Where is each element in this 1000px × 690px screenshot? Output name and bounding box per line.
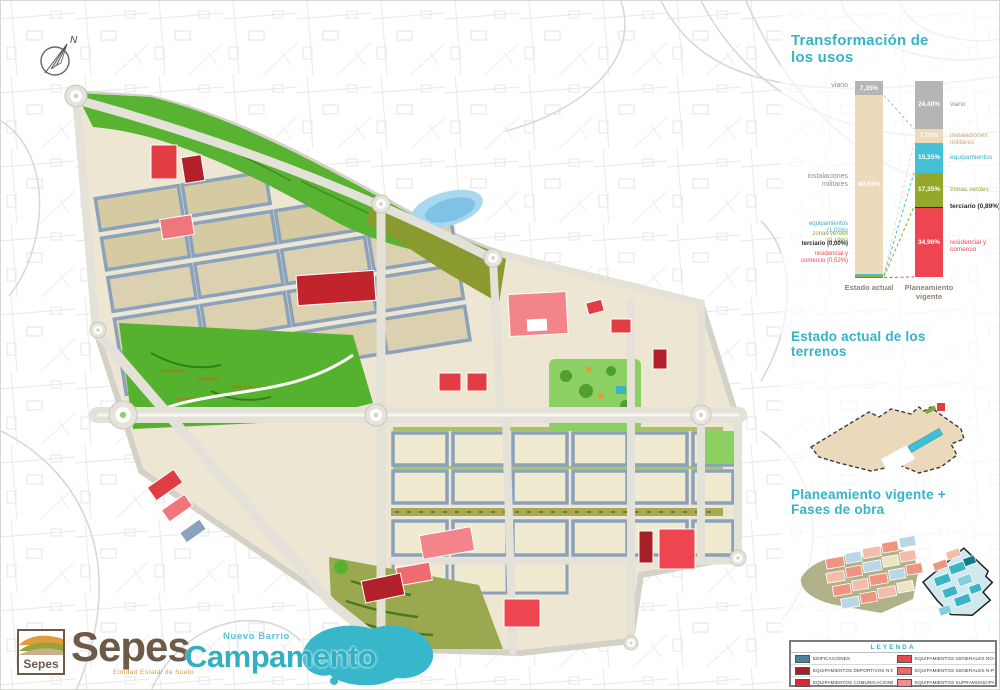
estado-title: Estado actual de los terrenos — [791, 329, 951, 359]
right-label-terciario: terciario (0,89%) — [950, 203, 1000, 210]
bar-segment-zonas-verdes: 17,35% — [915, 173, 943, 207]
bar-segment-instalaciones-militares: 7,01% — [915, 129, 943, 143]
left-label-terciario: terciario (0,00%) — [791, 241, 848, 248]
right-label-equipamientos: equipamientos — [950, 154, 1000, 161]
sepes-logo-waves-icon — [19, 631, 63, 655]
sepes-logo-text: Sepes — [19, 657, 63, 671]
legend-label: EQUIPAMIENTOS COMUNICACIONES ST — [813, 680, 893, 685]
legend-row: EDIFICACIONESEQUIPAMIENTOS GENERALES NO-… — [791, 653, 995, 665]
legend-swatch — [795, 679, 810, 687]
compass-icon: N — [25, 29, 85, 89]
estado-red-parcel — [937, 403, 945, 411]
legend-label: EQUIPAMIENTOS GENERALES NO-CS — [915, 656, 995, 661]
project-wordmark: Campamento — [185, 639, 376, 675]
sepes-logo: Sepes — [17, 629, 65, 675]
bar-segment-viario: 24,40% — [915, 81, 943, 129]
usage-chart: 7,35%90,92%Estado actual24,40%7,01%15,35… — [791, 73, 1000, 333]
right-label-viario: viario — [950, 101, 1000, 108]
right-label-residencial-y-comercio: residencial y comercio — [950, 239, 1000, 254]
bar-category-label: Estado actual — [837, 283, 901, 292]
legend-swatch — [795, 655, 810, 663]
bar-segment-equipamientos: 15,35% — [915, 143, 943, 173]
bar-segment-instalaciones-militares: 90,92% — [855, 95, 883, 273]
transformation-title: Transformación de los usos — [791, 33, 946, 67]
bar-category-label: Planeamiento vigente — [897, 283, 961, 301]
legend-item: EQUIPAMIENTOS GENERALES NO-CS — [893, 655, 995, 663]
bar-segment-viario: 7,35% — [855, 81, 883, 95]
sepes-wordmark: Sepes — [71, 623, 190, 671]
legend-item: EDIFICACIONES — [791, 655, 893, 663]
left-label-viario: viario — [791, 82, 848, 90]
right-label-instalaciones-militares: instalaciones militares — [950, 132, 1000, 147]
legend-title: LEYENDA — [791, 642, 995, 653]
planeamiento-panel: Planeamiento vigente + Fases de obra — [791, 487, 1000, 631]
transformation-panel: Transformación de los usos 7,35%90,92%Es… — [791, 33, 1000, 333]
legend-box: LEYENDA EDIFICACIONESEQUIPAMIENTOS GENER… — [789, 640, 997, 687]
legend-label: EDIFICACIONES — [813, 656, 850, 661]
legend-item: EQUIPAMIENTOS SUPRAMUNICIPALES N-SP — [893, 679, 995, 687]
bar-segment-residencial-y-comercio: 34,96% — [915, 208, 943, 277]
legend-swatch — [897, 667, 912, 675]
estado-mini-map — [791, 367, 991, 489]
left-label-instalaciones: instalaciones militares — [791, 173, 848, 189]
legend-row: EQUIPAMIENTOS DEPORTIVOS N-DEQUIPAMIENTO… — [791, 665, 995, 677]
legend-swatch — [897, 679, 912, 687]
legend-swatch — [897, 655, 912, 663]
right-label-zonas-verdes: zonas verdes — [950, 186, 1000, 193]
legend-item: EQUIPAMIENTOS GENERALES N-P — [893, 667, 995, 675]
planeamiento-title: Planeamiento vigente + Fases de obra — [791, 487, 971, 517]
plan-sheet: N Transformación de los usos 7,35%90,92%… — [0, 0, 1000, 690]
legend-swatch — [795, 667, 810, 675]
legend-rows: EDIFICACIONESEQUIPAMIENTOS GENERALES NO-… — [791, 653, 995, 688]
legend-label: EQUIPAMIENTOS DEPORTIVOS N-D — [813, 668, 893, 673]
legend-item: EQUIPAMIENTOS COMUNICACIONES ST — [791, 679, 893, 687]
estado-panel: Estado actual de los terrenos — [791, 329, 1000, 489]
legend-label: EQUIPAMIENTOS GENERALES N-P — [915, 668, 994, 673]
planeamiento-mini-map — [791, 523, 1000, 631]
legend-label: EQUIPAMIENTOS SUPRAMUNICIPALES N-SP — [915, 680, 995, 685]
plan-mosaic-east — [916, 541, 1000, 627]
bar-segment-residencial-y-comercio — [855, 277, 883, 278]
legend-item: EQUIPAMIENTOS DEPORTIVOS N-D — [791, 667, 893, 675]
left-label-residencial-y-comercio: residencial y comercio (0,52%) — [791, 251, 848, 264]
compass-north-label: N — [70, 35, 78, 46]
sepes-tagline: Entidad Estatal de Suelo — [113, 669, 194, 676]
legend-row: EQUIPAMIENTOS COMUNICACIONES STEQUIPAMIE… — [791, 677, 995, 688]
